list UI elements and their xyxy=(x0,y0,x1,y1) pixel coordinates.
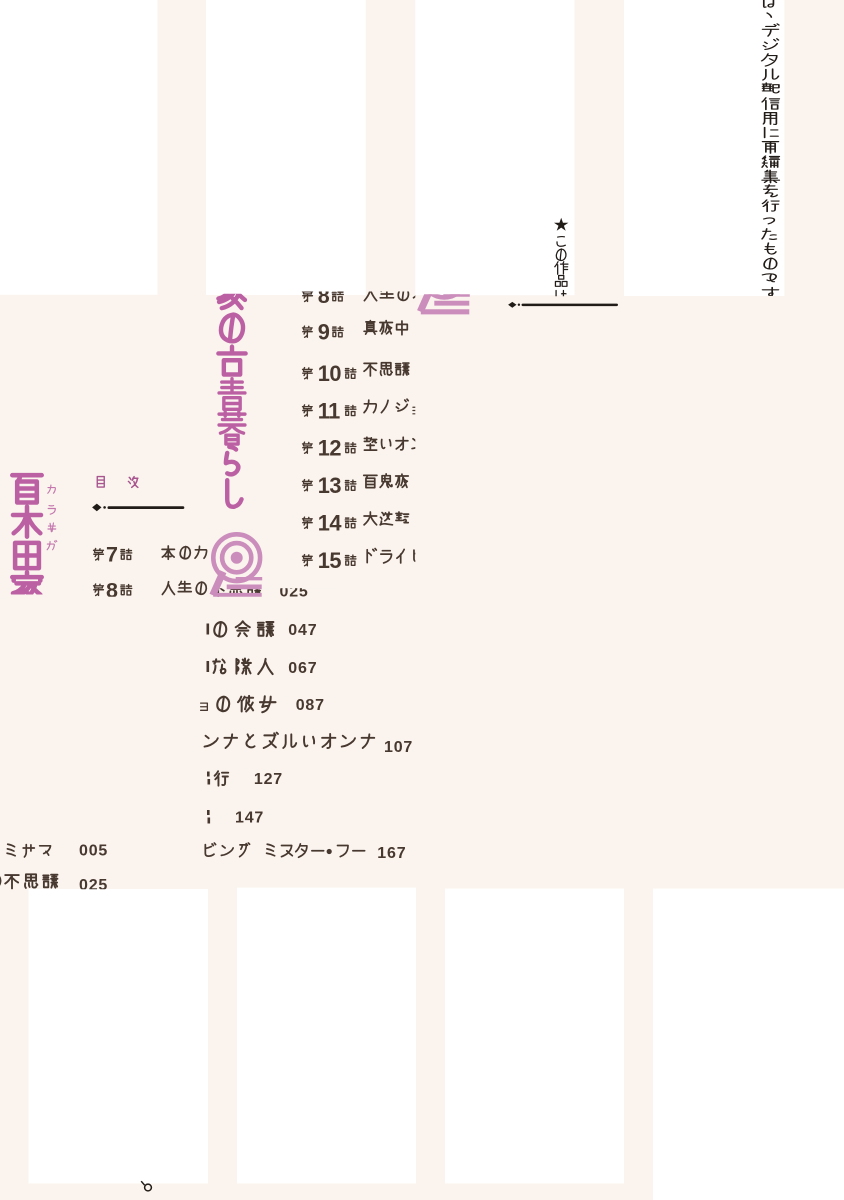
svg-text:127: 127 xyxy=(254,771,283,788)
svg-text:147: 147 xyxy=(235,809,264,826)
svg-text:167: 167 xyxy=(377,845,406,862)
svg-text:13: 13 xyxy=(318,473,342,498)
svg-text:047: 047 xyxy=(288,622,317,639)
svg-text:9: 9 xyxy=(318,320,330,345)
svg-text:087: 087 xyxy=(296,697,325,714)
svg-text:7: 7 xyxy=(106,543,118,567)
svg-text:107: 107 xyxy=(384,739,413,756)
svg-text:12: 12 xyxy=(318,436,342,461)
svg-text:11: 11 xyxy=(318,399,340,424)
svg-text:14: 14 xyxy=(318,511,342,536)
svg-text:10: 10 xyxy=(318,361,342,386)
svg-text:15: 15 xyxy=(318,548,342,573)
svg-text:067: 067 xyxy=(288,660,317,677)
svg-text:005: 005 xyxy=(79,843,108,860)
